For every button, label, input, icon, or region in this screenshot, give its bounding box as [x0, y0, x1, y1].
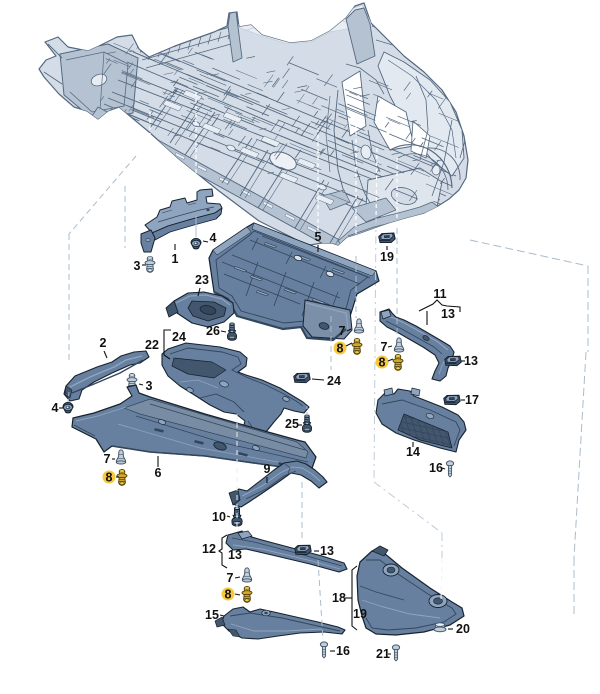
svg-text:8: 8: [379, 355, 386, 369]
svg-text:12: 12: [202, 542, 216, 556]
svg-text:8: 8: [106, 470, 113, 484]
svg-text:13: 13: [441, 307, 455, 321]
svg-text:16: 16: [429, 461, 443, 475]
svg-text:3: 3: [146, 379, 153, 393]
svg-text:7: 7: [227, 571, 234, 585]
svg-text:23: 23: [195, 273, 209, 287]
svg-text:9: 9: [264, 462, 271, 476]
svg-text:22: 22: [145, 338, 159, 352]
svg-text:7: 7: [104, 452, 111, 466]
svg-text:4: 4: [52, 401, 59, 415]
svg-text:11: 11: [433, 287, 446, 301]
svg-text:8: 8: [225, 587, 232, 601]
svg-text:10: 10: [212, 510, 226, 524]
svg-text:20: 20: [456, 622, 470, 636]
svg-text:17: 17: [465, 393, 479, 407]
svg-text:1: 1: [172, 252, 179, 266]
svg-text:21: 21: [376, 647, 390, 661]
svg-text:16: 16: [336, 644, 350, 658]
svg-text:6: 6: [155, 466, 162, 480]
svg-text:13: 13: [320, 544, 334, 558]
svg-text:3: 3: [134, 259, 141, 273]
svg-text:14: 14: [406, 445, 420, 459]
svg-text:24: 24: [172, 330, 186, 344]
svg-text:7: 7: [339, 324, 346, 338]
svg-text:7: 7: [381, 340, 388, 354]
svg-text:18: 18: [332, 591, 346, 605]
svg-text:8: 8: [337, 341, 344, 355]
svg-text:2: 2: [100, 336, 107, 350]
svg-text:5: 5: [315, 230, 322, 244]
svg-text:15: 15: [205, 608, 219, 622]
svg-text:13: 13: [228, 548, 242, 562]
svg-text:24: 24: [327, 374, 341, 388]
svg-text:19: 19: [380, 250, 394, 264]
svg-text:4: 4: [210, 231, 217, 245]
svg-text:13: 13: [464, 354, 478, 368]
svg-text:19: 19: [353, 607, 367, 621]
svg-text:26: 26: [206, 324, 220, 338]
svg-text:25: 25: [285, 417, 299, 431]
